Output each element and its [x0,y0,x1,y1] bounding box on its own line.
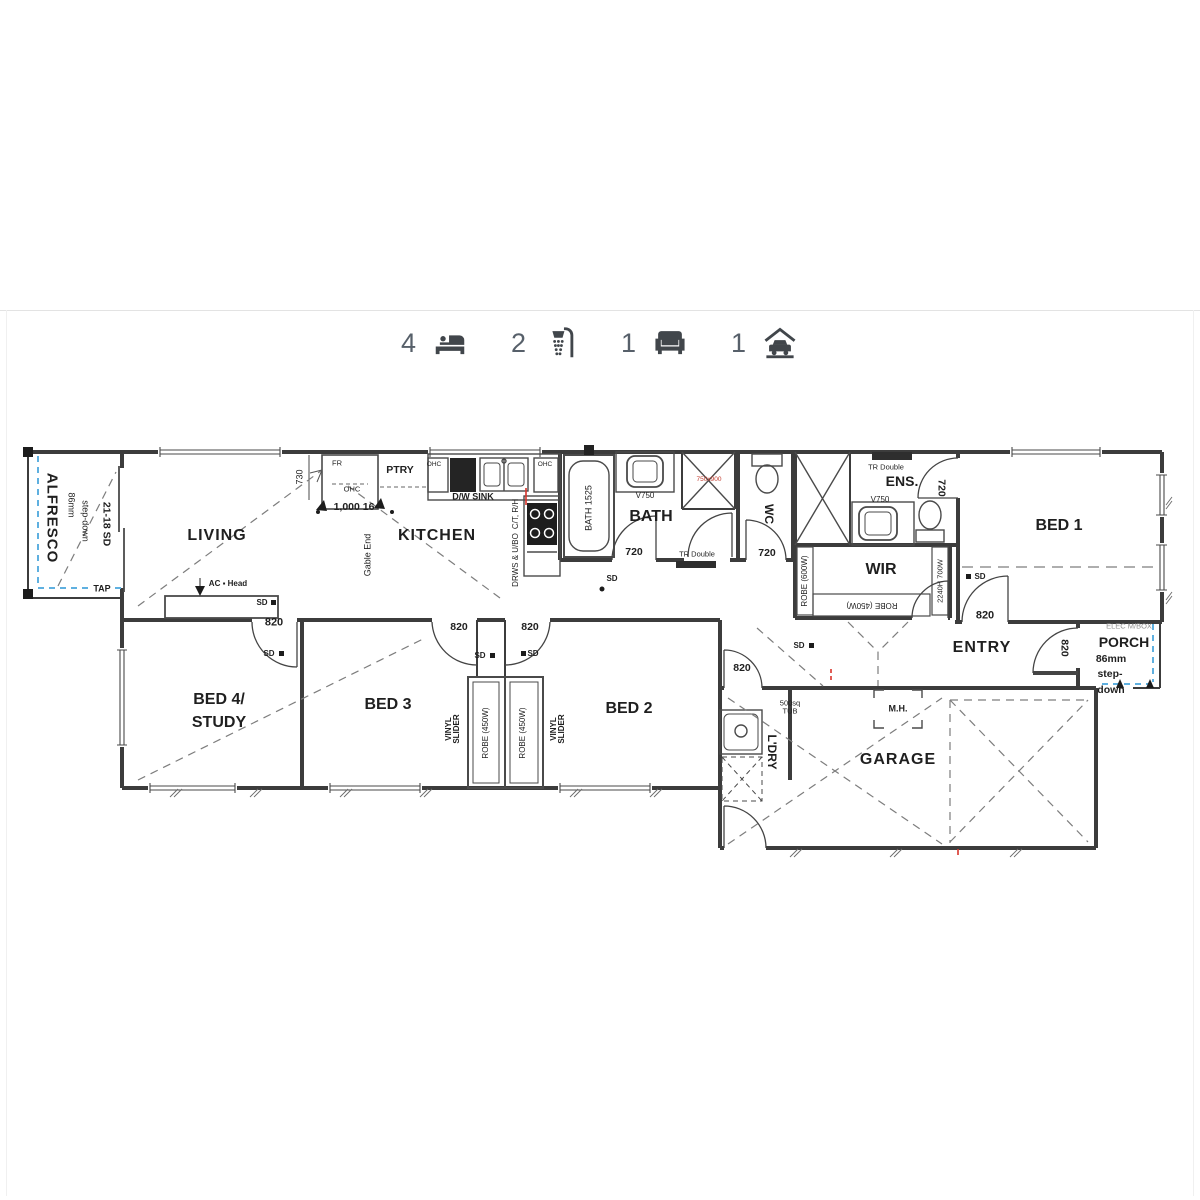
wall-ticks [170,497,1172,857]
door-dim-720: 720 [625,547,643,558]
smoke-detector-label: SD [474,652,485,660]
gable-end-label: Gable End [364,534,373,577]
room-label-living: LIVING [187,528,246,544]
floor-plan: ALFRESCO 86mm step-down 21-18 SD TAP LIV… [0,0,1200,1200]
bathtub-label: BATH 1525 [585,485,594,531]
vinyl-slider-label: VINYLSLIDER [445,714,461,743]
room-label-bed2: BED 2 [605,701,652,717]
overhead-cupboard-label: OHC [427,462,441,469]
overhead-cupboard-label: OHC [538,462,552,469]
robe-450-label: ROBE (450W) [519,707,527,758]
vinyl-slider-label: VINYLSLIDER [550,714,566,743]
door-dim-820: 820 [521,622,539,633]
vanity-750-label: V750 [871,496,890,504]
vanity-750-label: V750 [636,492,655,500]
porch-stepdown-step: step- [1097,669,1122,680]
door-dim-720: 720 [936,479,947,497]
porch-stepdown-down: down [1097,685,1124,696]
alfresco-stepdown-word: step-down [81,500,90,542]
robe-450-label: ROBE (450W) [846,601,897,609]
room-label-alfresco: ALFRESCO [45,473,60,564]
room-label-ensuite: ENS. [886,474,919,488]
door-dim-820: 820 [450,622,468,633]
door-dim-820: 820 [1059,639,1070,657]
shower-size-label: 750x900 [697,477,722,484]
manhole-label: M.H. [889,705,908,714]
room-label-entry: ENTRY [953,640,1012,656]
room-label-bed4-line2: STUDY [192,715,246,731]
door-dim-820: 820 [976,611,994,622]
room-label-porch: PORCH [1099,635,1150,649]
robe-450-label: ROBE (450W) [482,707,490,758]
floorplan-page: 4 2 1 [0,0,1200,1200]
pantry-label: PTRY [386,465,414,476]
dim-730: 730 [296,469,305,484]
door-dim-820: 820 [265,618,283,629]
ac-head-label: AC ▪ Head [209,580,247,588]
room-label-wc: WC [763,504,775,524]
smoke-detector-label: SD [256,599,267,607]
porch-stepdown-mm: 86mm [1096,654,1126,665]
dishwasher-sink-label: D/W SINK [452,493,494,502]
alfresco-stepdown-mm: 86mm [67,492,76,517]
overhead-cupboard-label: OHC [344,485,361,493]
door-dim-820: 820 [733,663,751,674]
smoke-detector-label: SD [263,650,274,658]
towel-rail-label: TR Double [679,550,715,558]
dim-1000: 1,000 16 [334,502,375,513]
elec-meter-box-label: ELEC M/BOX [1106,622,1152,630]
room-label-kitchen: KITCHEN [398,528,476,544]
tap-label: TAP [91,585,112,594]
room-label-bed1: BED 1 [1035,518,1082,534]
floor-plan-linework [0,0,1200,1200]
smoke-detector-label: SD [793,642,804,650]
room-label-bath: BATH [629,509,672,525]
laundry-tub-label: 500sq TUB [774,700,806,715]
room-label-bed3: BED 3 [364,697,411,713]
smoke-detector-label: SD [974,573,985,581]
robe-600-label: ROBE (600W) [801,555,809,606]
drawers-oven-label: DRWS & U/BO [512,533,520,587]
fridge-label: FR [332,459,342,467]
cooktop-rangehood-label: C/T, R/H [512,499,520,529]
smoke-detector-label: SD [606,575,617,583]
room-label-laundry: L'DRY [766,734,778,769]
alfresco-sliding-door-dim: 21-18 SD [101,502,112,546]
room-label-garage: GARAGE [860,752,936,768]
room-label-bed4-line1: BED 4/ [193,692,245,708]
smoke-detector-label: SD [527,650,538,658]
door-dim-720: 720 [758,548,776,559]
towel-rail-label: TR Double [868,463,904,471]
robe-2240-label: 2240H 700W [936,559,944,603]
room-label-wir: WIR [865,562,896,578]
